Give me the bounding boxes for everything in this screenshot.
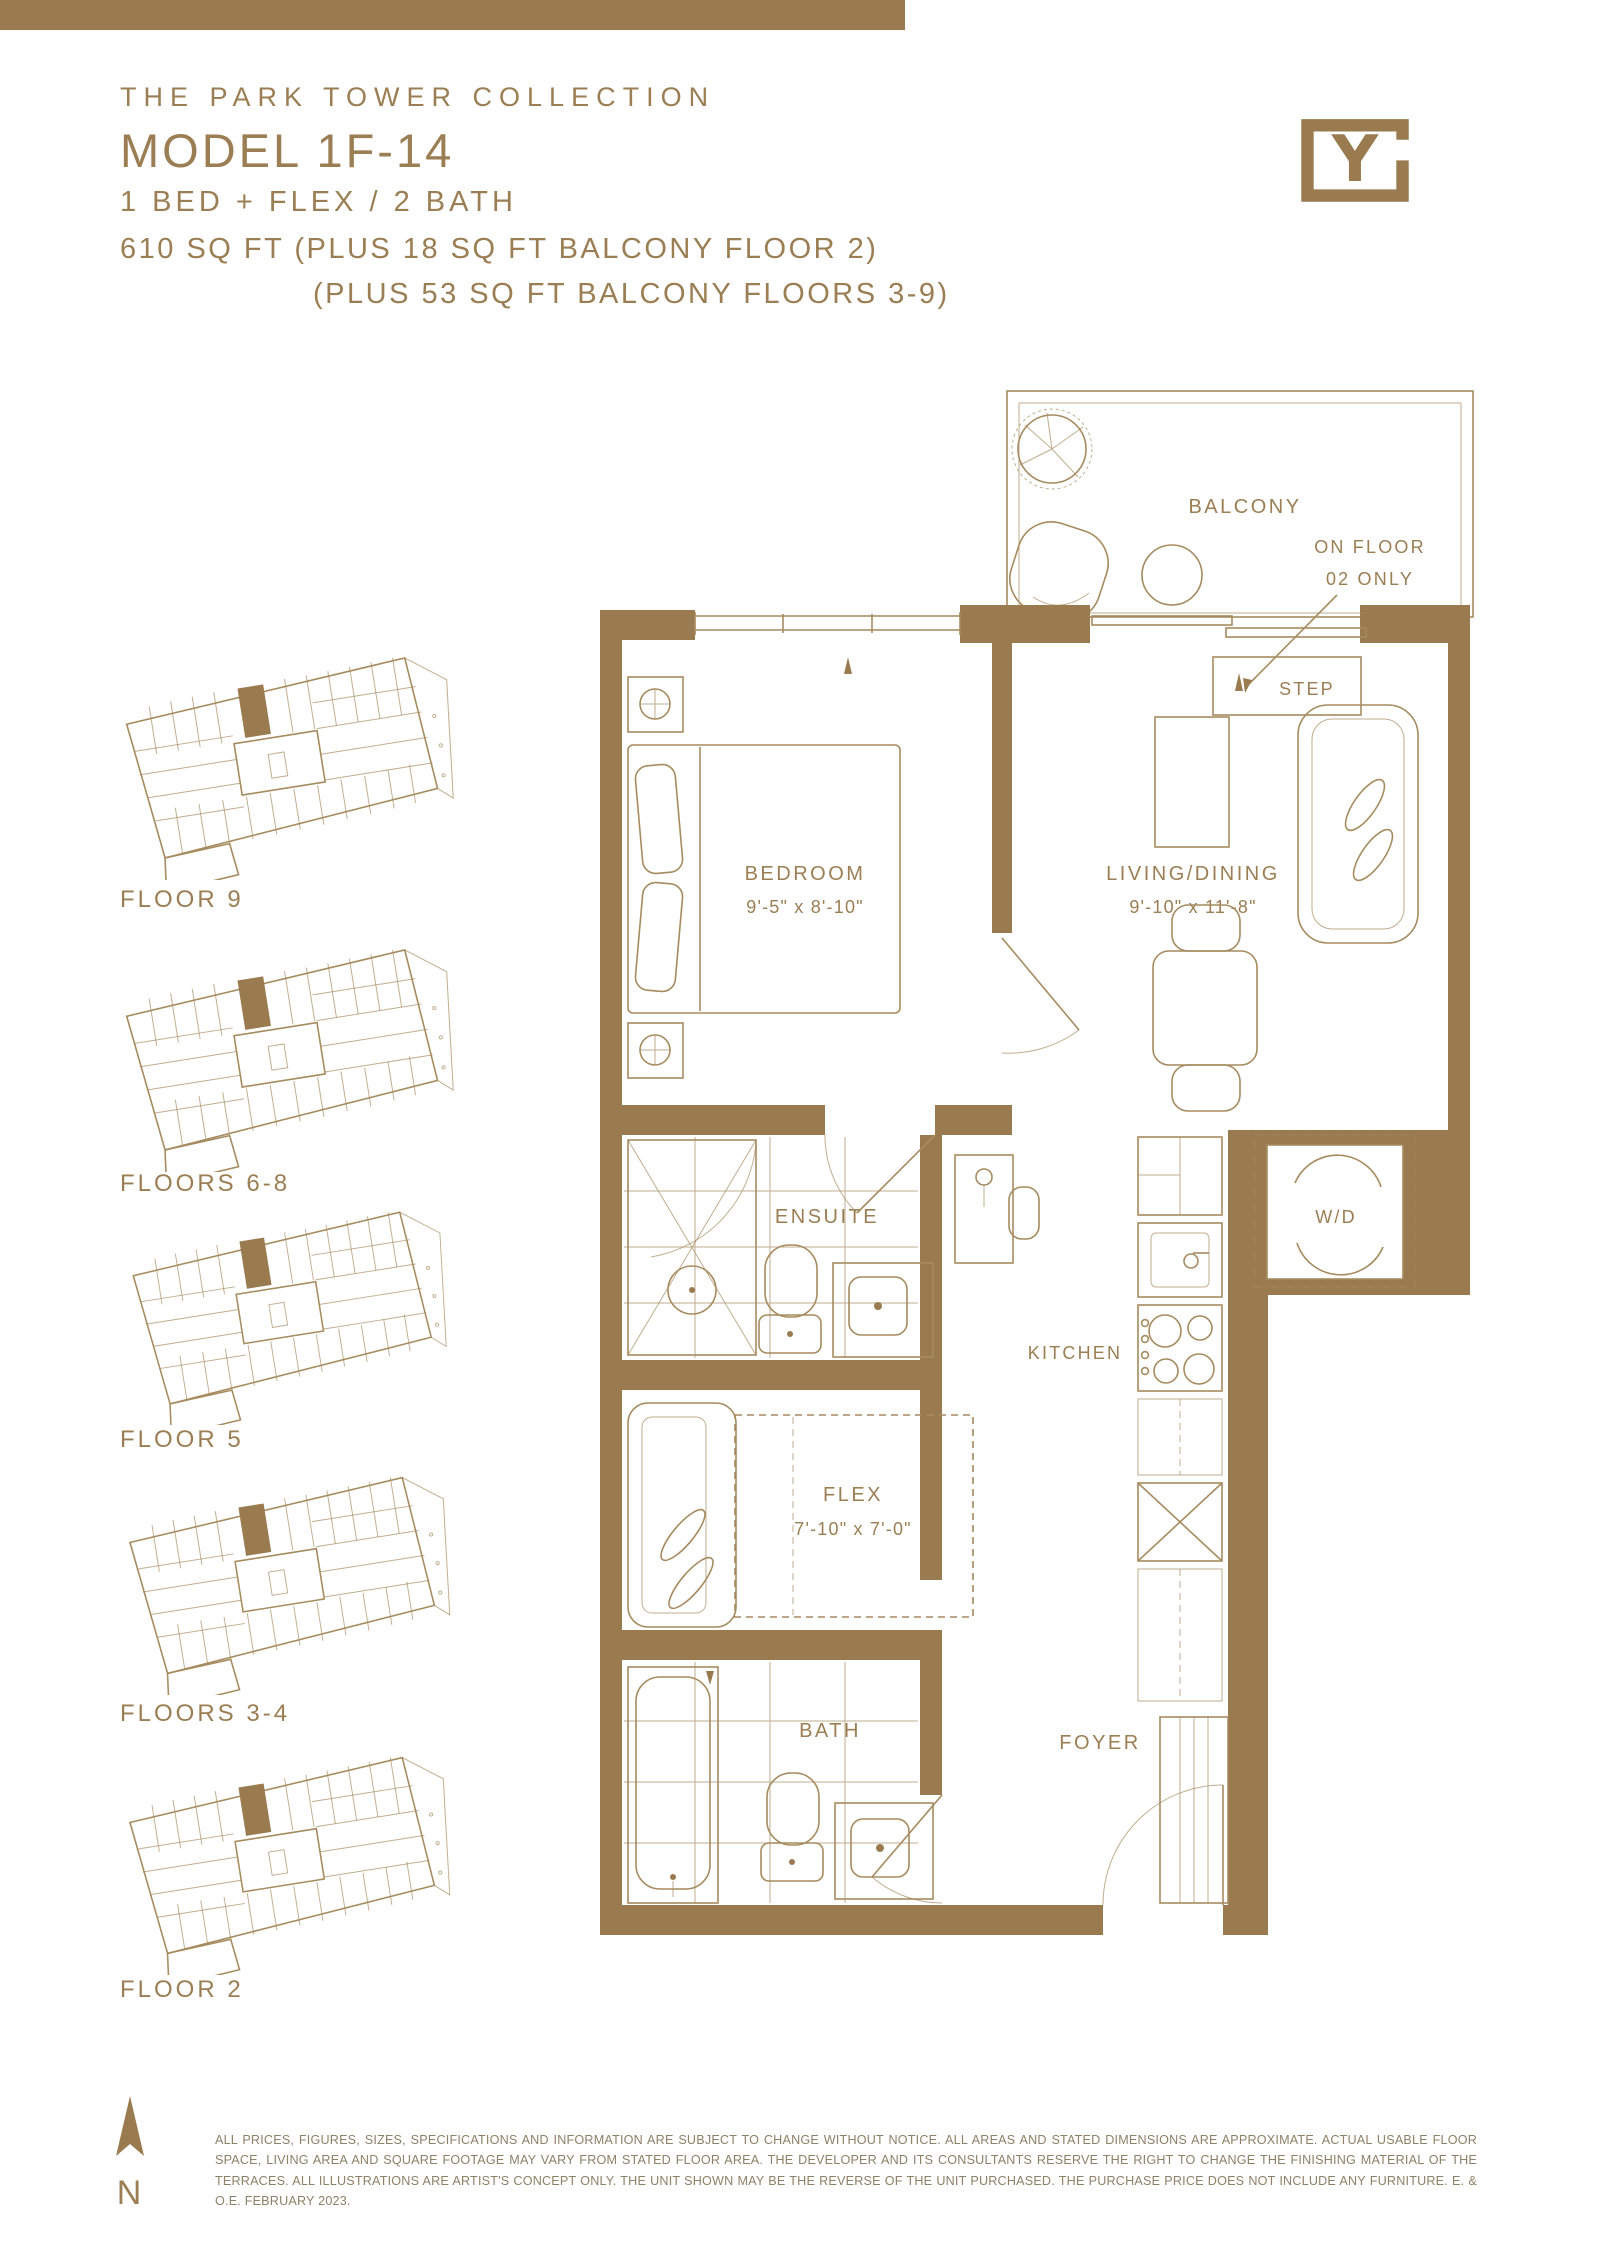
keyplan-label-floor-2: FLOOR 2 [120, 1976, 244, 2004]
keyplan-floor-5 [85, 1195, 485, 1425]
bath: BATH [624, 1662, 942, 1903]
cooktop [1138, 1305, 1222, 1391]
living-label: LIVING/DINING [1106, 863, 1280, 885]
wd-label: W/D [1315, 1207, 1357, 1227]
header: THE PARK TOWER COLLECTION MODEL 1F-14 1 … [120, 82, 950, 323]
sofa-pillow [1347, 824, 1399, 886]
model-name: MODEL 1F-14 [120, 123, 950, 178]
unit-config: 1 BED + FLEX / 2 BATH [120, 186, 950, 219]
pillow [663, 1552, 719, 1614]
leader-line [1248, 595, 1337, 685]
living-dining: LIVING/DINING 9'-10" x 11'-8" [1106, 705, 1418, 1111]
bedroom-dims: 9'-5" x 8'-10" [746, 897, 864, 917]
bath-toilet [767, 1773, 819, 1845]
ensuite-label: ENSUITE [775, 1206, 879, 1228]
main-floorplan: BALCONY ON FLOOR 02 ONLY STEP [595, 385, 1485, 1960]
top-accent-bar [0, 0, 905, 30]
keyplan-floors-3-4 [85, 1460, 485, 1695]
collection-title: THE PARK TOWER COLLECTION [120, 82, 950, 113]
flex-dims: 7'-10" x 7'-0" [794, 1519, 912, 1539]
sofa [1298, 705, 1418, 943]
north-label: N [117, 2174, 144, 2212]
ensuite: ENSUITE [624, 1135, 935, 1358]
keyplan-floor-2 [85, 1740, 485, 1975]
area-line-2: (PLUS 53 SQ FT BALCONY FLOORS 3-9) [313, 278, 950, 311]
dining-chair [1172, 1065, 1240, 1111]
area-line-1: 610 SQ FT (PLUS 18 SQ FT BALCONY FLOOR 2… [120, 233, 950, 266]
disclaimer-text: ALL PRICES, FIGURES, SIZES, SPECIFICATIO… [215, 2130, 1477, 2212]
balcony-note-line2: 02 ONLY [1326, 569, 1414, 589]
bath-door [872, 1795, 942, 1877]
bedroom-label: BEDROOM [745, 863, 866, 885]
kitchen: KITCHEN [1028, 1137, 1222, 1701]
kitchen-label: KITCHEN [1028, 1343, 1122, 1363]
keyplan-floor-9 [85, 640, 485, 880]
bath-label: BATH [799, 1720, 861, 1742]
keyplan-label-floors-6-8: FLOORS 6-8 [120, 1170, 290, 1198]
dining-table [1153, 951, 1257, 1065]
laundry-closet: W/D [1255, 1135, 1415, 1287]
flex-sofa [628, 1403, 736, 1627]
keyplan-label-floor-5: FLOOR 5 [120, 1426, 244, 1454]
ensuite-toilet [765, 1245, 817, 1317]
bath-vanity [835, 1803, 933, 1899]
desk [955, 1155, 1013, 1263]
console-table [1155, 717, 1229, 847]
north-arrow-icon [116, 2096, 144, 2156]
pillow [655, 1504, 711, 1566]
balcony-label: BALCONY [1188, 496, 1301, 518]
balcony: BALCONY ON FLOOR 02 ONLY STEP [1001, 391, 1473, 715]
desk-nook [955, 1155, 1039, 1263]
foyer-label: FOYER [1059, 1732, 1140, 1754]
keyplan-label-floors-3-4: FLOORS 3-4 [120, 1700, 290, 1728]
balcony-table [1142, 545, 1202, 605]
floorplan-page: { "header": { "collection": "THE PARK TO… [0, 0, 1600, 2248]
brand-logo: Y [1293, 86, 1417, 210]
north-arrow: N [100, 2092, 160, 2222]
logo-letter: Y [1331, 123, 1379, 197]
flex-label: FLEX [823, 1484, 883, 1506]
balcony-note-line1: ON FLOOR [1314, 537, 1426, 557]
bedroom-door [1002, 938, 1079, 1030]
step-label: STEP [1279, 679, 1335, 699]
sofa-pillow [1339, 774, 1391, 836]
bathtub [628, 1667, 718, 1903]
bedroom-window [695, 612, 960, 674]
keyplan-floors-6-8 [85, 932, 485, 1172]
foyer: FOYER [1059, 1717, 1228, 1905]
keyplan-label-floor-9: FLOOR 9 [120, 886, 244, 914]
